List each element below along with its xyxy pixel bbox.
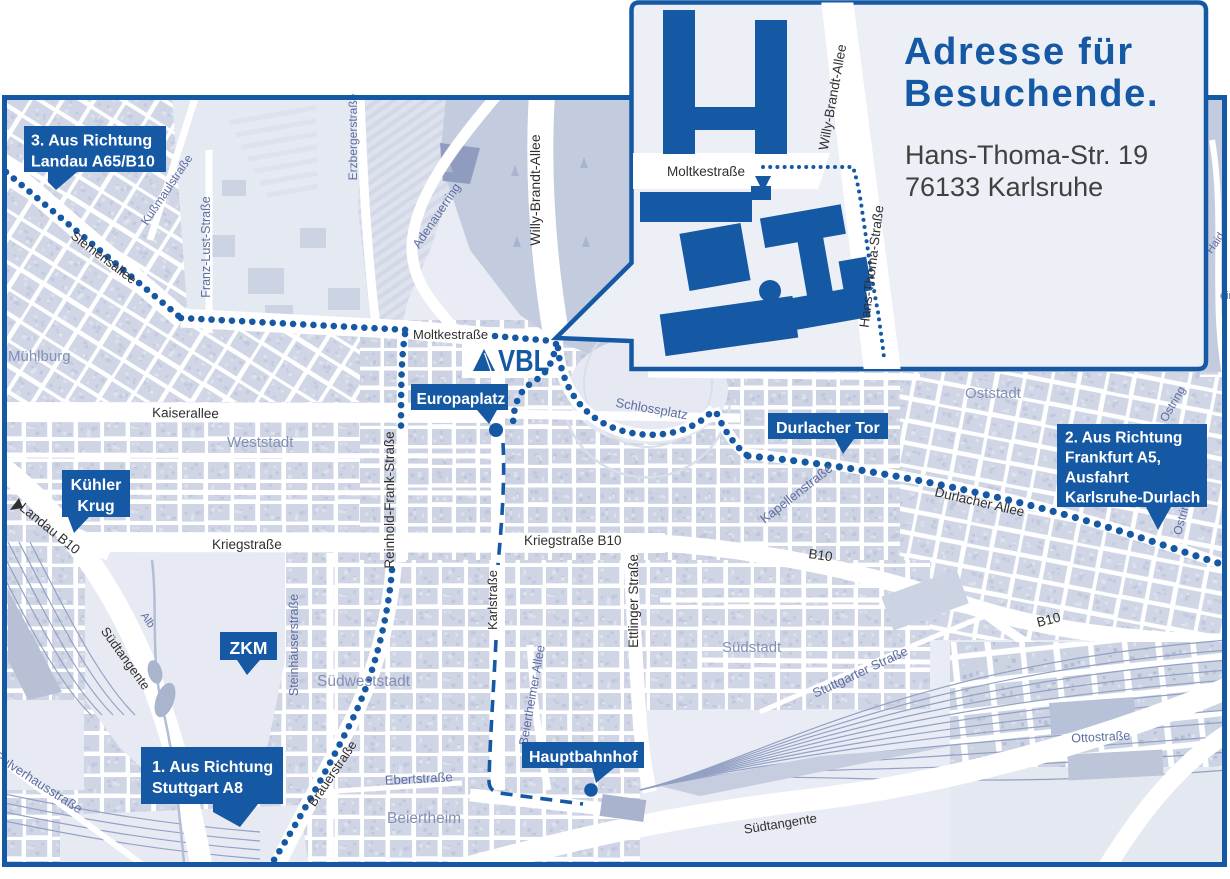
svg-text:Hans-Thoma-Str. 19: Hans-Thoma-Str. 19 <box>905 140 1148 170</box>
svg-text:Südweststadt: Südweststadt <box>317 673 411 690</box>
svg-text:Besuchende.: Besuchende. <box>904 73 1159 115</box>
svg-text:Weststadt: Weststadt <box>227 434 294 451</box>
svg-text:Ausfahrt: Ausfahrt <box>1065 470 1129 487</box>
svg-text:Adresse für: Adresse für <box>904 31 1134 73</box>
svg-text:Europaplatz: Europaplatz <box>417 391 506 408</box>
svg-text:2. Aus Richtung: 2. Aus Richtung <box>1065 430 1182 447</box>
svg-text:Erzbergerstraße: Erzbergerstraße <box>346 93 360 180</box>
svg-text:1. Aus Richtung: 1. Aus Richtung <box>152 759 273 776</box>
svg-text:Durlacher Tor: Durlacher Tor <box>776 420 880 437</box>
svg-text:Oststadt: Oststadt <box>965 385 1022 402</box>
svg-text:Hauptbahnhof: Hauptbahnhof <box>529 749 638 766</box>
svg-text:Kaiserallee: Kaiserallee <box>152 405 219 421</box>
svg-text:Moltkestraße: Moltkestraße <box>413 327 488 342</box>
svg-text:Krug: Krug <box>77 498 114 515</box>
svg-text:VBL: VBL <box>498 344 549 378</box>
svg-text:Beiertheim: Beiertheim <box>387 810 461 827</box>
svg-text:Reinhold-Frank-Straße: Reinhold-Frank-Straße <box>382 431 397 568</box>
svg-text:Kriegstraße: Kriegstraße <box>212 537 282 552</box>
svg-text:Steinhäuserstraße: Steinhäuserstraße <box>287 594 301 696</box>
svg-text:Landau A65/B10: Landau A65/B10 <box>31 154 155 171</box>
svg-text:Stuttgart A8: Stuttgart A8 <box>152 780 243 797</box>
svg-text:Karlsruhe-Durlach: Karlsruhe-Durlach <box>1065 490 1200 507</box>
svg-text:ZKM: ZKM <box>230 638 268 658</box>
svg-text:Franz-Lust-Straße: Franz-Lust-Straße <box>199 196 213 297</box>
svg-text:Kühler: Kühler <box>71 477 122 494</box>
svg-text:Kriegstraße B10: Kriegstraße B10 <box>524 533 622 548</box>
svg-text:Frankfurt A5,: Frankfurt A5, <box>1065 450 1161 467</box>
svg-text:Südstadt: Südstadt <box>722 639 782 656</box>
svg-text:Mühlburg: Mühlburg <box>8 348 71 365</box>
svg-text:Moltkestraße: Moltkestraße <box>667 164 745 179</box>
svg-text:Ettlinger Straße: Ettlinger Straße <box>626 554 641 648</box>
svg-text:3. Aus Richtung: 3. Aus Richtung <box>31 133 152 150</box>
svg-text:Karlstraße: Karlstraße <box>485 570 500 630</box>
svg-text:Willy-Brandt-Allee: Willy-Brandt-Allee <box>527 134 543 245</box>
svg-text:76133 Karlsruhe: 76133 Karlsruhe <box>905 172 1103 202</box>
